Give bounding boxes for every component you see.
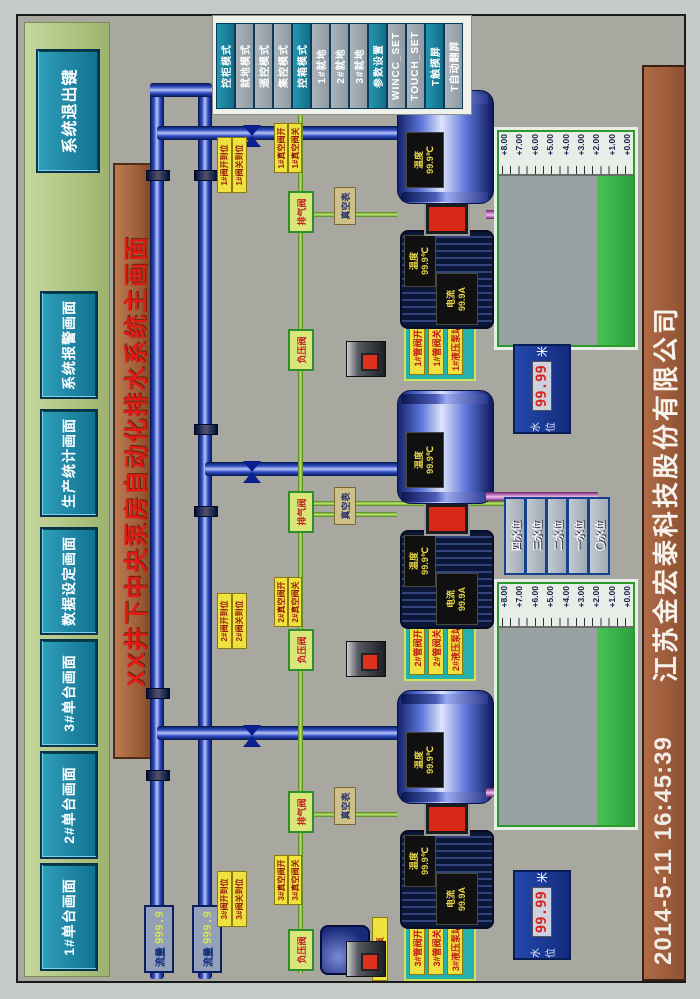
pump-temp-display-1: 温度99.9℃ bbox=[406, 132, 444, 188]
nav-button-production-stats[interactable]: 生产统计画面 bbox=[40, 409, 98, 517]
hydraulic-device-icon-2 bbox=[346, 641, 386, 677]
mode-button-auto-flip[interactable]: T自动翻屏 bbox=[444, 23, 463, 109]
pump-temp-display-2: 温度99.9℃ bbox=[406, 432, 444, 488]
level-button-2[interactable]: 二水位 bbox=[546, 497, 568, 575]
vent-valve-box-2[interactable]: 排气阀 bbox=[288, 491, 314, 533]
valve-open-status-1: 1#阀开到位 bbox=[217, 137, 232, 193]
vent-valve-box-1[interactable]: 排气阀 bbox=[288, 191, 314, 233]
panel-strip[interactable]: 1#管阀关 bbox=[428, 321, 444, 375]
sump-tank-left: +8.00+7.00 +6.00+5.00 +4.00+3.00 +2.00+1… bbox=[494, 579, 638, 830]
level-scale: +8.00+7.00 +6.00+5.00 +4.00+3.00 +2.00+1… bbox=[499, 132, 633, 176]
vacuum-closed-status-2: 2#真空阀关 bbox=[288, 577, 302, 627]
mode-button-touch-set[interactable]: TOUCH_SET bbox=[406, 23, 425, 109]
mode-button-3-local[interactable]: 3#就地 bbox=[349, 23, 368, 109]
mode-button-cabinet[interactable]: 控柜模式 bbox=[216, 23, 235, 109]
motor-current-display-3: 电流99.9A bbox=[436, 873, 478, 925]
valve-closed-status-2: 2#阀关到位 bbox=[232, 593, 247, 649]
pipe-coupling bbox=[194, 170, 218, 181]
mode-button-param-set[interactable]: 参数设置 bbox=[368, 23, 387, 109]
valve-closed-status-3: 3#阀关到位 bbox=[232, 871, 247, 927]
title-bar: XX井下中央泵房自动化排水系统主画面 bbox=[113, 163, 154, 759]
vacuum-gauge-box-1: 真空表 bbox=[334, 187, 356, 225]
footer-bar: 2014-5-11 16:45:39 江苏金宏泰科技股份有限公司 bbox=[642, 65, 686, 981]
main-pipe-1 bbox=[150, 83, 164, 979]
motor-temp-display-1: 温度99.9℃ bbox=[404, 235, 436, 287]
motor-temp-display-3: 温度99.9℃ bbox=[404, 835, 436, 887]
panel-strip: 3#液压泵站 bbox=[447, 921, 463, 975]
flow-label: 流量 bbox=[152, 947, 167, 967]
panel-strip[interactable]: 3#管阀关 bbox=[428, 921, 444, 975]
mode-button-wincc-set[interactable]: WINCC_SET bbox=[387, 23, 406, 109]
vacuum-gauge-box-3: 真空表 bbox=[334, 787, 356, 825]
coupling-guard-3 bbox=[426, 804, 468, 834]
panel-strip: 2#液压泵站 bbox=[447, 621, 463, 675]
rotated-screenshot-stage: 1#单台画面 2#单台画面 3#单台画面 数据设定画面 生产统计画面 系统报警画… bbox=[0, 0, 700, 999]
pipe-coupling bbox=[146, 770, 170, 781]
mode-button-central[interactable]: 集控模式 bbox=[273, 23, 292, 109]
panel-strip: 1#液压泵站 bbox=[447, 321, 463, 375]
hydraulic-device-icon-3 bbox=[346, 941, 386, 977]
sump-tank-right: +8.00+7.00 +6.00+5.00 +4.00+3.00 +2.00+1… bbox=[494, 127, 638, 350]
main-pipe-2 bbox=[198, 83, 212, 979]
level-button-4[interactable]: 四水位 bbox=[504, 497, 526, 575]
pump-cap bbox=[401, 394, 488, 404]
level-button-1[interactable]: 一水位 bbox=[567, 497, 589, 575]
panel-strip[interactable]: 3#管阀开 bbox=[409, 921, 425, 975]
vacuum-valve-box-3[interactable]: 负压阀 bbox=[288, 929, 314, 971]
pipe-coupling bbox=[194, 506, 218, 517]
datetime-display: 2014-5-11 16:45:39 bbox=[650, 736, 678, 965]
level-scale: +8.00+7.00 +6.00+5.00 +4.00+3.00 +2.00+1… bbox=[499, 584, 633, 628]
mode-button-box[interactable]: 控箱模式 bbox=[292, 23, 311, 109]
pipe-coupling bbox=[194, 424, 218, 435]
vacuum-manifold bbox=[298, 113, 303, 973]
motor-current-display-1: 电流99.9A bbox=[436, 273, 478, 325]
coupling-guard-2 bbox=[426, 504, 468, 534]
pump-cap bbox=[401, 792, 488, 802]
pipe-coupling bbox=[146, 688, 170, 699]
mode-button-touchscreen[interactable]: T触摸屏 bbox=[425, 23, 444, 109]
motor-current-display-2: 电流99.9A bbox=[436, 573, 478, 625]
pump-cap bbox=[401, 694, 488, 704]
level-button-0[interactable]: 〇水位 bbox=[588, 497, 610, 575]
flow-meter-1: 流量 999.9 bbox=[144, 905, 174, 973]
main-pipe-connector bbox=[150, 83, 212, 97]
nav-button-pump1-screen[interactable]: 1#单台画面 bbox=[40, 863, 98, 971]
pipe-coupling bbox=[146, 170, 170, 181]
nav-button-data-setting[interactable]: 数据设定画面 bbox=[40, 527, 98, 635]
nav-button-pump3-screen[interactable]: 3#单台画面 bbox=[40, 639, 98, 747]
flow-value: 999.9 bbox=[153, 911, 166, 944]
mode-button-local[interactable]: 就地模式 bbox=[235, 23, 254, 109]
riser-unit3 bbox=[157, 726, 400, 740]
hydraulic-device-icon-1 bbox=[346, 341, 386, 377]
vacuum-closed-status-1: 1#真空阀关 bbox=[288, 123, 302, 173]
flow-value: 999.9 bbox=[201, 911, 214, 944]
water-level-display-right: 水位 99.99 米 bbox=[513, 344, 571, 434]
pump-cap bbox=[401, 492, 488, 502]
vacuum-closed-status-3: 3#真空阀关 bbox=[288, 855, 302, 905]
vacuum-valve-box-2[interactable]: 负压阀 bbox=[288, 629, 314, 671]
pump-cap bbox=[401, 192, 488, 202]
level-button-3[interactable]: 三水位 bbox=[525, 497, 547, 575]
vacuum-open-status-2: 2#真空阀开 bbox=[274, 577, 288, 627]
system-exit-button[interactable]: 系统退出键 bbox=[36, 49, 100, 173]
nav-button-system-alarm[interactable]: 系统报警画面 bbox=[40, 291, 98, 399]
mode-button-2-local[interactable]: 2#就地 bbox=[330, 23, 349, 109]
page-title: XX井下中央泵房自动化排水系统主画面 bbox=[116, 235, 151, 687]
mode-button-remote[interactable]: 遥控模式 bbox=[254, 23, 273, 109]
vacuum-open-status-3: 3#真空阀开 bbox=[274, 855, 288, 905]
panel-strip[interactable]: 2#管阀开 bbox=[409, 621, 425, 675]
valve-open-status-3: 3#阀开到位 bbox=[217, 871, 232, 927]
panel-strip[interactable]: 2#管阀关 bbox=[428, 621, 444, 675]
coupling-guard-1 bbox=[426, 204, 468, 234]
company-name: 江苏金宏泰科技股份有限公司 bbox=[646, 305, 683, 682]
vacuum-gauge-box-2: 真空表 bbox=[334, 487, 356, 525]
nav-button-pump2-screen[interactable]: 2#单台画面 bbox=[40, 751, 98, 859]
scale-ticks bbox=[502, 618, 630, 626]
scale-ticks bbox=[502, 166, 630, 174]
vacuum-valve-box-1[interactable]: 负压阀 bbox=[288, 329, 314, 371]
water-level-display-left: 水位 99.99 米 bbox=[513, 870, 571, 960]
vent-valve-box-3[interactable]: 排气阀 bbox=[288, 791, 314, 833]
flow-label: 流量 bbox=[200, 947, 215, 967]
valve-open-status-2: 2#阀开到位 bbox=[217, 593, 232, 649]
pump-temp-display-3: 温度99.9℃ bbox=[406, 732, 444, 788]
vacuum-open-status-1: 1#真空阀开 bbox=[274, 123, 288, 173]
panel-strip[interactable]: 1#管阀开 bbox=[409, 321, 425, 375]
motor-temp-display-2: 温度99.9℃ bbox=[404, 535, 436, 587]
scada-main-screen: 1#单台画面 2#单台画面 3#单台画面 数据设定画面 生产统计画面 系统报警画… bbox=[0, 0, 700, 999]
mode-button-1-local[interactable]: 1#就地 bbox=[311, 23, 330, 109]
valve-closed-status-1: 1#阀关到位 bbox=[232, 137, 247, 193]
